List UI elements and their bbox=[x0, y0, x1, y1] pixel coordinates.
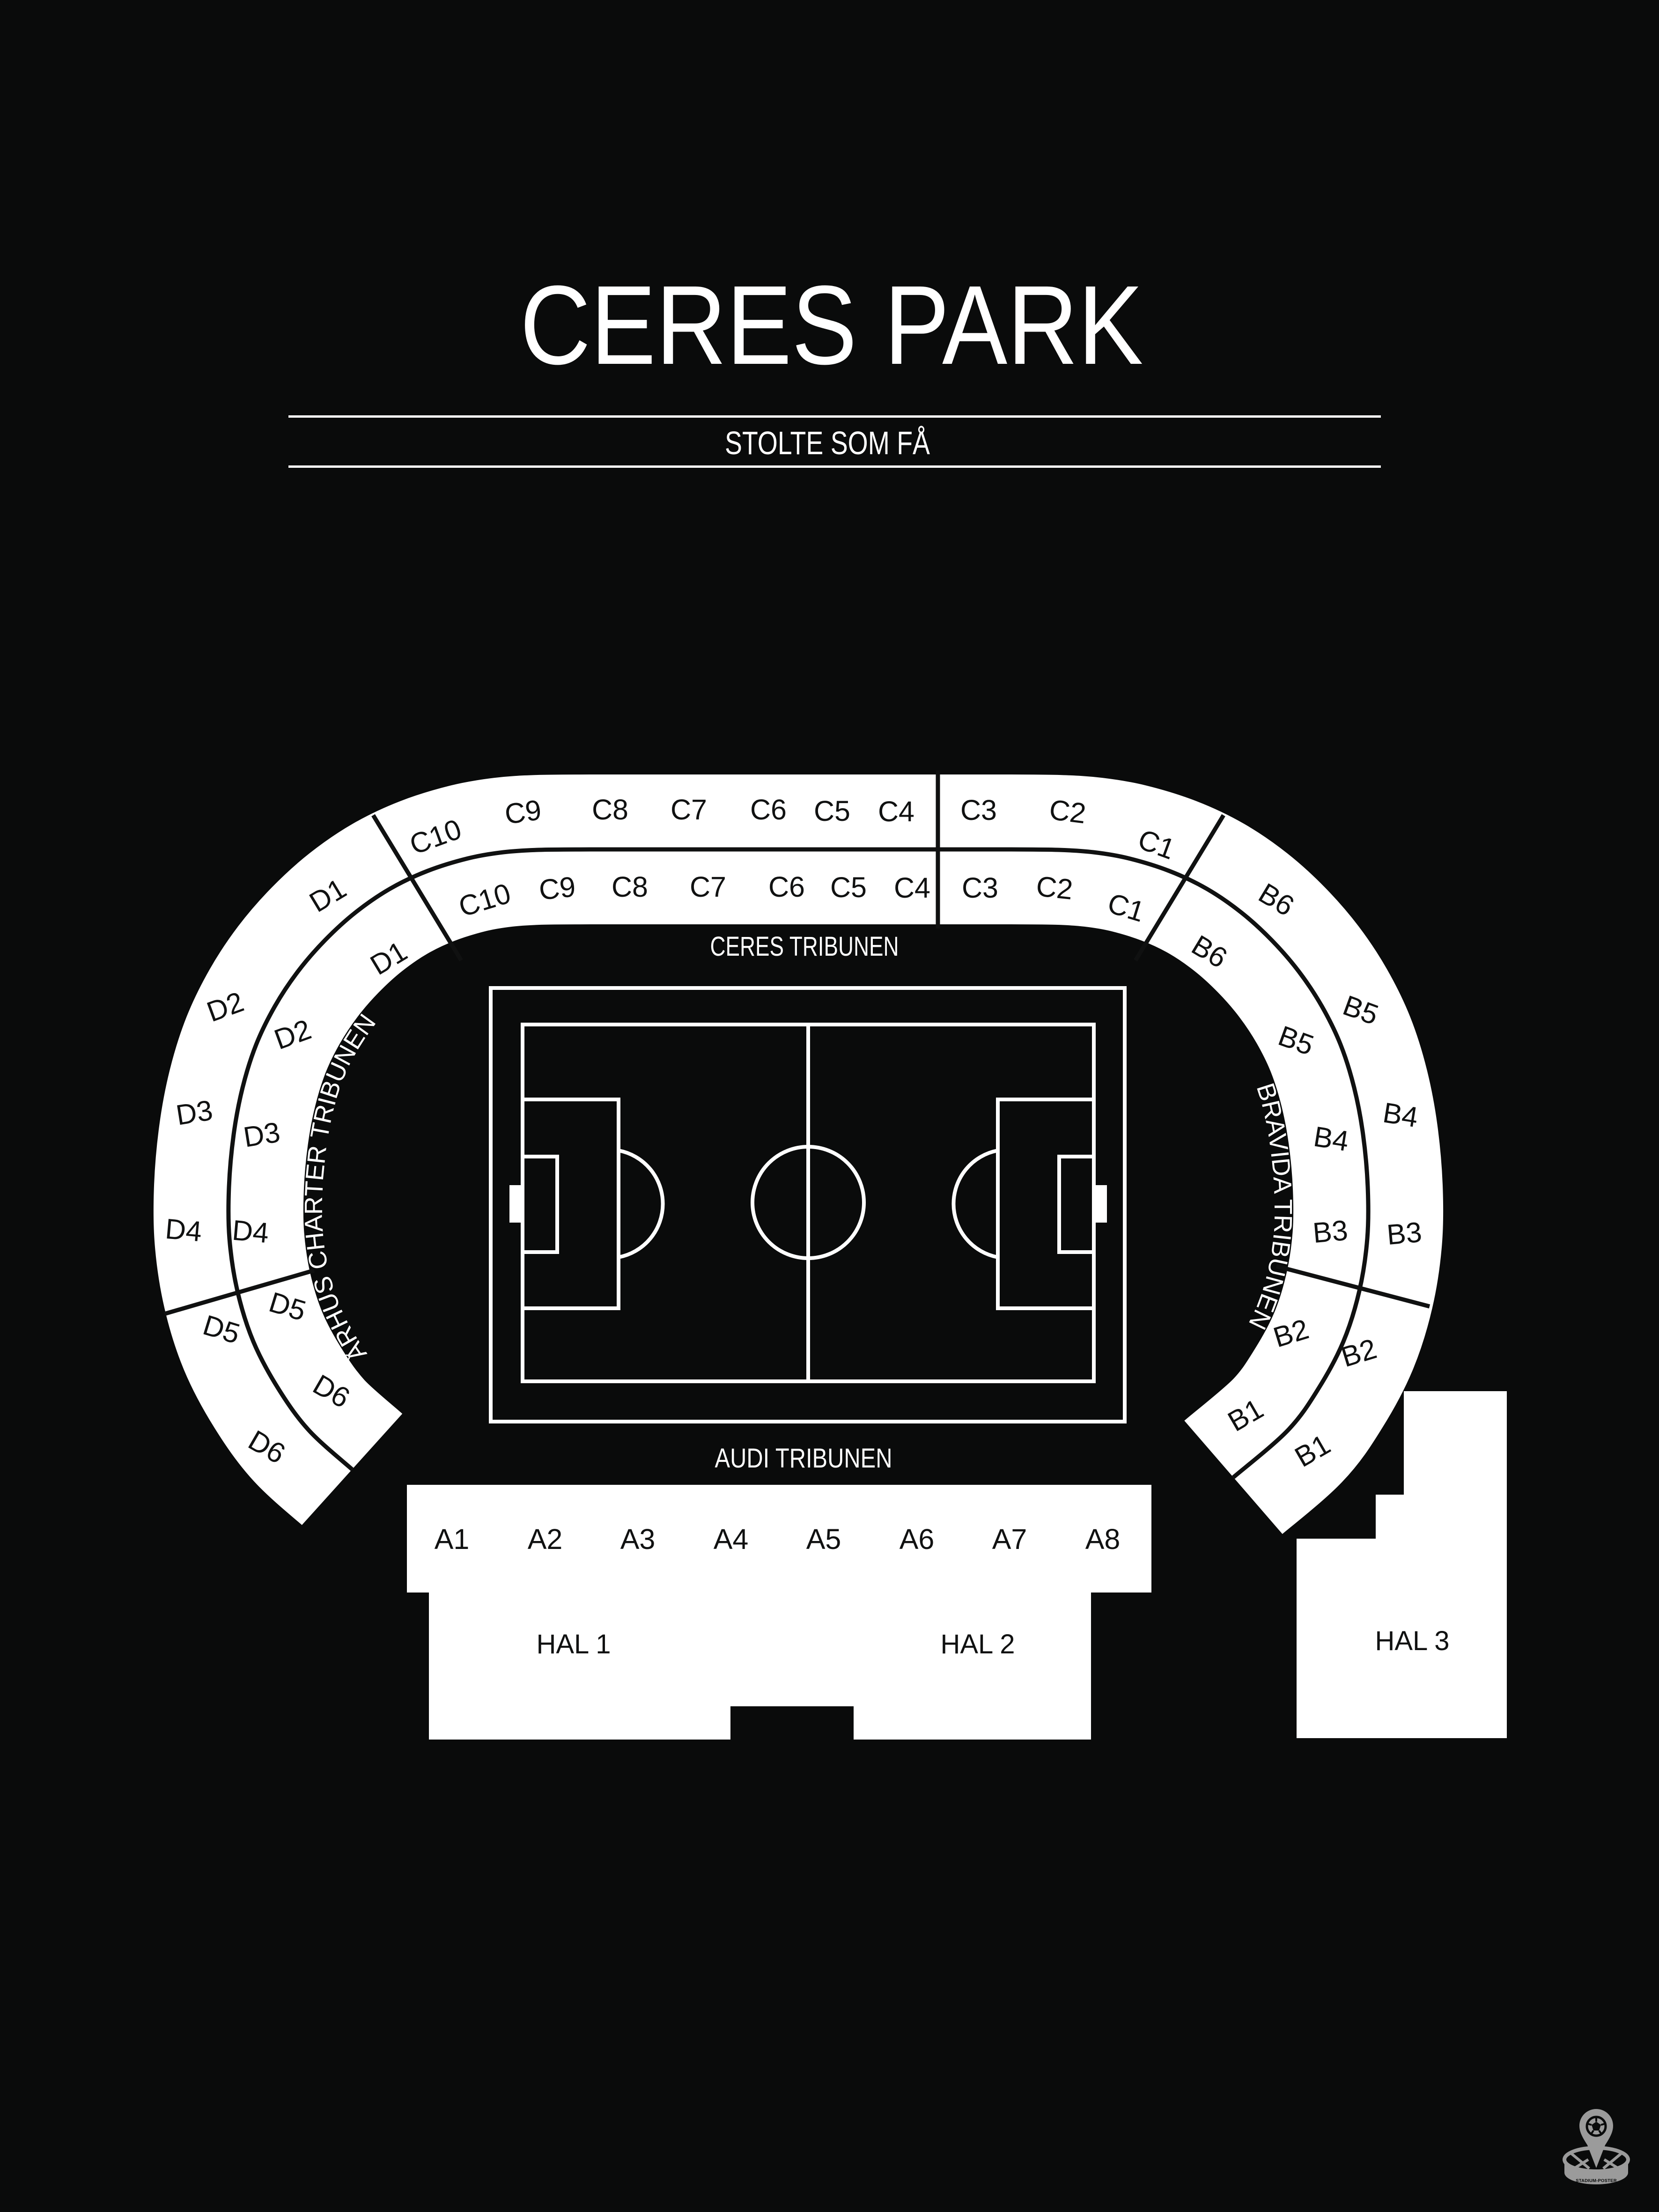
svg-text:C8: C8 bbox=[612, 871, 648, 903]
svg-text:D4: D4 bbox=[231, 1214, 270, 1249]
svg-text:C5: C5 bbox=[830, 871, 867, 903]
svg-text:A1: A1 bbox=[435, 1523, 470, 1555]
svg-text:B4: B4 bbox=[1312, 1121, 1351, 1158]
svg-text:C9: C9 bbox=[503, 794, 544, 830]
svg-text:STADIUM-POSTER: STADIUM-POSTER bbox=[1576, 2178, 1617, 2183]
svg-text:STOLTE SOM FÅ: STOLTE SOM FÅ bbox=[725, 425, 930, 461]
svg-text:C6: C6 bbox=[750, 794, 787, 826]
svg-text:HAL 1: HAL 1 bbox=[536, 1629, 611, 1659]
svg-text:A8: A8 bbox=[1085, 1523, 1121, 1555]
svg-text:AUDI TRIBUNEN: AUDI TRIBUNEN bbox=[715, 1443, 892, 1474]
svg-text:A4: A4 bbox=[714, 1523, 749, 1555]
svg-text:C9: C9 bbox=[538, 870, 577, 906]
svg-text:C6: C6 bbox=[768, 871, 805, 903]
svg-text:B4: B4 bbox=[1381, 1097, 1420, 1134]
svg-text:HAL 2: HAL 2 bbox=[940, 1629, 1015, 1659]
svg-text:C7: C7 bbox=[671, 794, 707, 826]
svg-text:A2: A2 bbox=[528, 1523, 563, 1555]
svg-text:C4: C4 bbox=[878, 796, 914, 827]
svg-text:C7: C7 bbox=[690, 871, 726, 903]
svg-text:CERES TRIBUNEN: CERES TRIBUNEN bbox=[710, 931, 899, 962]
svg-text:C3: C3 bbox=[960, 794, 997, 826]
svg-text:C5: C5 bbox=[814, 795, 850, 827]
svg-text:HAL 3: HAL 3 bbox=[1375, 1626, 1449, 1656]
svg-text:D3: D3 bbox=[174, 1094, 215, 1131]
svg-text:C3: C3 bbox=[962, 872, 998, 904]
svg-text:C2: C2 bbox=[1047, 794, 1088, 830]
svg-text:CERES PARK: CERES PARK bbox=[520, 262, 1143, 388]
svg-text:B3: B3 bbox=[1312, 1214, 1349, 1249]
svg-text:C8: C8 bbox=[592, 794, 628, 826]
svg-text:C4: C4 bbox=[894, 872, 930, 904]
svg-text:B3: B3 bbox=[1386, 1216, 1423, 1251]
svg-text:D3: D3 bbox=[241, 1116, 282, 1153]
svg-text:C2: C2 bbox=[1035, 870, 1075, 906]
svg-text:A3: A3 bbox=[620, 1523, 656, 1555]
svg-text:A6: A6 bbox=[900, 1523, 935, 1555]
svg-text:A5: A5 bbox=[806, 1523, 841, 1555]
svg-text:A7: A7 bbox=[992, 1523, 1027, 1555]
svg-text:D4: D4 bbox=[164, 1213, 203, 1248]
